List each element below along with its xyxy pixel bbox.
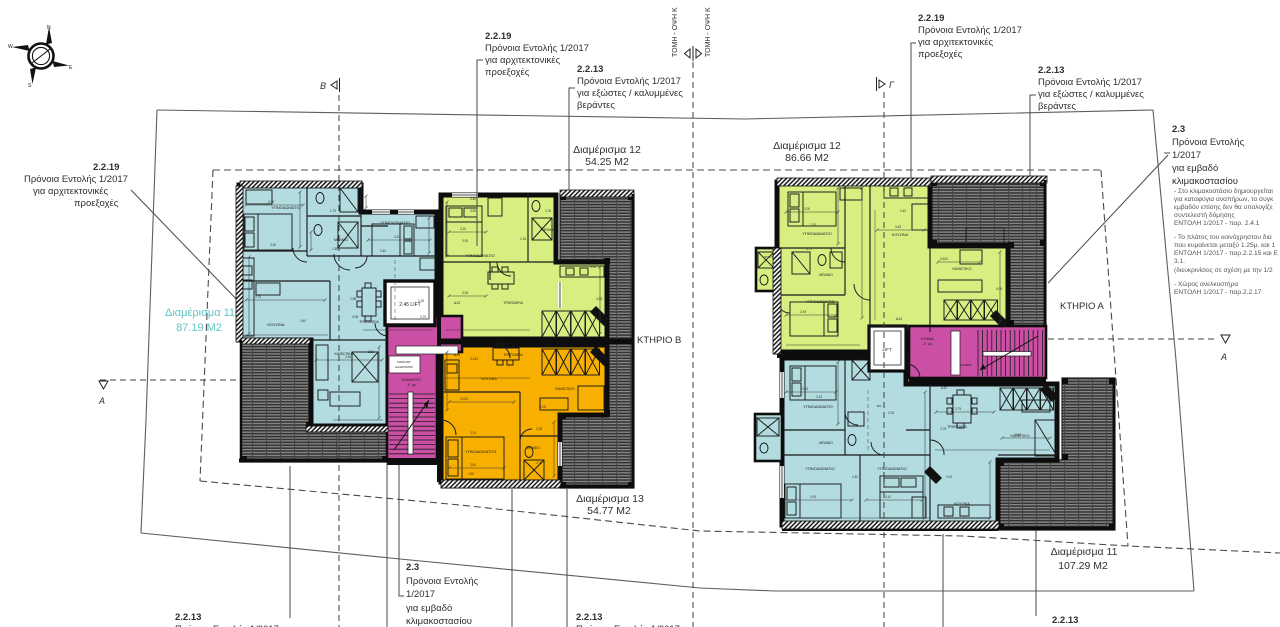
svg-text:για αρχιτεκτονικές: για αρχιτεκτονικές bbox=[918, 37, 993, 48]
svg-text:W: W bbox=[8, 44, 13, 50]
svg-text:2.3: 2.3 bbox=[406, 562, 419, 573]
svg-text:2.2.19: 2.2.19 bbox=[93, 162, 119, 173]
svg-text:1/2017: 1/2017 bbox=[1172, 150, 1201, 161]
svg-text:2.15: 2.15 bbox=[520, 237, 526, 241]
svg-text:NTOYΣ: NTOYΣ bbox=[764, 255, 774, 259]
svg-text:για εξώστες / καλυμμένες: για εξώστες / καλυμμένες bbox=[577, 88, 683, 99]
svg-text:54.77 M2: 54.77 M2 bbox=[587, 505, 631, 517]
svg-text:2.2.13: 2.2.13 bbox=[1052, 615, 1078, 626]
svg-text:(διευκρινίσεις σε σχέση με την: (διευκρινίσεις σε σχέση με την 1/2 bbox=[1174, 266, 1273, 274]
svg-text:- Χώρος ανελκυστήρα: - Χώρος ανελκυστήρα bbox=[1174, 280, 1238, 288]
svg-text:Πρόνοια Εντολής 1/2017: Πρόνοια Εντολής 1/2017 bbox=[918, 25, 1022, 36]
svg-text:3.75: 3.75 bbox=[255, 295, 261, 299]
svg-text:ΤΡΑΠΖΑΡΙΑ: ΤΡΑΠΖΑΡΙΑ bbox=[359, 320, 379, 324]
svg-text:A: A bbox=[1220, 352, 1227, 362]
svg-text:ΜΠΑΝΙΟ: ΜΠΑΝΙΟ bbox=[526, 446, 540, 450]
svg-text:ΤΡΑΠΖΑΡΙΑ: ΤΡΑΠΖΑΡΙΑ bbox=[947, 425, 967, 429]
svg-text:2.2.19: 2.2.19 bbox=[918, 13, 944, 24]
svg-text:ΜΠΑΝΙΟ: ΜΠΑΝΙΟ bbox=[819, 441, 833, 445]
svg-text:WC: WC bbox=[877, 404, 883, 408]
svg-text:86.66 M2: 86.66 M2 bbox=[785, 152, 829, 164]
svg-text:3.20: 3.20 bbox=[470, 431, 476, 435]
svg-text:για εμβαδό: για εμβαδό bbox=[406, 603, 452, 614]
svg-text:2.25: 2.25 bbox=[536, 427, 542, 431]
svg-text:4.55: 4.55 bbox=[596, 297, 602, 301]
svg-text:ΚΟΥΖΙΝΑ: ΚΟΥΖΙΝΑ bbox=[892, 233, 909, 237]
svg-text:87.19 M2: 87.19 M2 bbox=[176, 322, 222, 334]
svg-text:κλιμακοστασίου: κλιμακοστασίου bbox=[406, 616, 472, 627]
svg-text:ΜΠΑΝΙΟ: ΜΠΑΝΙΟ bbox=[542, 228, 556, 232]
svg-text:που κυμαίνεται μεταξύ 1.25μ. κ: που κυμαίνεται μεταξύ 1.25μ. και 1 bbox=[1174, 241, 1275, 249]
svg-text:2.2.13: 2.2.13 bbox=[175, 612, 201, 623]
svg-text:1.70: 1.70 bbox=[330, 209, 336, 213]
svg-text:54.25 M2: 54.25 M2 bbox=[585, 156, 629, 168]
svg-text:3.05: 3.05 bbox=[462, 291, 468, 295]
svg-text:3.45: 3.45 bbox=[895, 225, 901, 229]
svg-text:3.625: 3.625 bbox=[940, 257, 948, 261]
svg-text:N: N bbox=[47, 25, 51, 31]
svg-text:3.15: 3.15 bbox=[816, 395, 822, 399]
svg-text:ΚΤΗΡΙΟ Β: ΚΤΗΡΙΟ Β bbox=[637, 335, 681, 346]
svg-text:3.75: 3.75 bbox=[806, 247, 812, 251]
svg-text:ΥΠΝΟΔΩΜΑΤΙΟ: ΥΠΝΟΔΩΜΑΤΙΟ bbox=[802, 231, 832, 236]
svg-text:για εμβαδό: για εμβαδό bbox=[1172, 163, 1218, 174]
svg-text:3.445: 3.445 bbox=[470, 357, 478, 361]
svg-text:Διαμέρισμα 13: Διαμέρισμα 13 bbox=[576, 493, 644, 505]
svg-text:ΑΝΑΒΑΤ.: ΑΝΑΒΑΤ. bbox=[960, 363, 972, 367]
svg-text:Διαμέρισμα 12: Διαμέρισμα 12 bbox=[573, 144, 641, 156]
svg-text:εμβαδόν επίσης δεν θα υπολογίζ: εμβαδόν επίσης δεν θα υπολογίζε bbox=[1174, 203, 1273, 211]
svg-text:ΤΡΑΠΖΑΡΙΑ: ΤΡΑΠΖΑΡΙΑ bbox=[503, 353, 523, 357]
svg-text:ΥΠΝΟΔΩΜΑΤΙΟ: ΥΠΝΟΔΩΜΑΤΙΟ bbox=[271, 205, 301, 210]
svg-text:ΕΝΤΟΛΗ 1/2017 - παρ. 2.4.1: ΕΝΤΟΛΗ 1/2017 - παρ. 2.4.1 bbox=[1174, 220, 1260, 227]
svg-text:2.25: 2.25 bbox=[536, 461, 542, 465]
svg-text:3.10: 3.10 bbox=[885, 495, 891, 499]
svg-text:- Το πλάτος του κοινόχρηστου δ: - Το πλάτος του κοινόχρηστου δια bbox=[1174, 233, 1272, 241]
svg-text:3.40: 3.40 bbox=[394, 235, 400, 239]
svg-text:συντελεστή δόμησης: συντελεστή δόμησης bbox=[1174, 211, 1235, 219]
svg-text:Δ11: Δ11 bbox=[368, 350, 374, 354]
svg-text:4.55: 4.55 bbox=[590, 255, 596, 259]
svg-text:3.80: 3.80 bbox=[470, 463, 476, 467]
svg-text:ΥΠΝΟΔΩΜΑΤΙΟ: ΥΠΝΟΔΩΜΑΤΙΟ bbox=[805, 299, 835, 304]
svg-text:Πρόνοια Εντολής 1/2017: Πρόνοια Εντολής 1/2017 bbox=[1038, 77, 1142, 88]
svg-text:Πρόνοια Εντολής 1/2017: Πρόνοια Εντολής 1/2017 bbox=[24, 174, 128, 185]
svg-text:Γ: Γ bbox=[889, 80, 895, 90]
svg-text:προεξοχές: προεξοχές bbox=[485, 67, 530, 78]
svg-text:Αˈ ορ.: Αˈ ορ. bbox=[407, 383, 416, 387]
svg-text:για εξώστες / καλυμμένες: για εξώστες / καλυμμένες bbox=[1038, 89, 1144, 100]
svg-text:Αˈ ορ.: Αˈ ορ. bbox=[923, 342, 932, 346]
svg-text:ΥΠΝΟΔΩΜΑΤΙΟ: ΥΠΝΟΔΩΜΑΤΙΟ bbox=[803, 404, 833, 409]
svg-text:4.35: 4.35 bbox=[590, 265, 596, 269]
svg-text:3.08: 3.08 bbox=[352, 315, 358, 319]
svg-text:3.00: 3.00 bbox=[810, 495, 816, 499]
svg-text:Δ12: Δ12 bbox=[896, 317, 902, 321]
svg-text:3.40: 3.40 bbox=[900, 209, 906, 213]
svg-text:3.15: 3.15 bbox=[802, 387, 808, 391]
svg-text:3.40: 3.40 bbox=[380, 249, 386, 253]
svg-text:3.78: 3.78 bbox=[940, 427, 946, 431]
svg-text:ΜΠΑΝΙΟ: ΜΠΑΝΙΟ bbox=[819, 273, 833, 277]
svg-text:Πρόνοια Εντολής 1/2017: Πρόνοια Εντολής 1/2017 bbox=[485, 43, 589, 54]
svg-text:2.2.13: 2.2.13 bbox=[577, 64, 603, 75]
svg-text:3.025: 3.025 bbox=[460, 397, 468, 401]
svg-text:ΚΑΘΙΣΤΙΚΟ: ΚΑΘΙΣΤΙΚΟ bbox=[952, 267, 971, 271]
svg-text:ΥΠΝΟΔΩΜΑΤΙΟ: ΥΠΝΟΔΩΜΑΤΙΟ bbox=[877, 466, 907, 471]
svg-text:1.85: 1.85 bbox=[332, 247, 338, 251]
svg-text:ΚΟΥΖΙΝΑ: ΚΟΥΖΙΝΑ bbox=[267, 322, 285, 327]
svg-text:Διαμέρισμα 11: Διαμέρισμα 11 bbox=[165, 307, 235, 319]
svg-text:B: B bbox=[320, 81, 326, 91]
svg-text:ΥΠΝΟΔΩΜΑΤΙΟ: ΥΠΝΟΔΩΜΑΤΙΟ bbox=[465, 253, 495, 258]
svg-text:3.20: 3.20 bbox=[460, 227, 466, 231]
svg-text:Δ11: Δ11 bbox=[941, 386, 947, 390]
svg-text:Δ12: Δ12 bbox=[454, 301, 460, 305]
svg-text:- Στο κλιμακοστάσιο δημιουργεί: - Στο κλιμακοστάσιο δημιουργείται bbox=[1174, 187, 1273, 195]
svg-text:2.2.13: 2.2.13 bbox=[1038, 65, 1064, 76]
svg-text:ΕΝΤΟΛΗ 1/2017 - παρ.2.2.15 και: ΕΝΤΟΛΗ 1/2017 - παρ.2.2.15 και Ε bbox=[1174, 250, 1278, 257]
svg-text:A: A bbox=[98, 396, 105, 406]
svg-text:107.29 M2: 107.29 M2 bbox=[1058, 560, 1108, 572]
svg-text:Πρόνοια Εντολής: Πρόνοια Εντολής bbox=[406, 576, 479, 587]
svg-text:2.25: 2.25 bbox=[888, 411, 894, 415]
svg-text:3.80: 3.80 bbox=[470, 197, 476, 201]
svg-text:3.30: 3.30 bbox=[810, 223, 816, 227]
svg-text:5.05: 5.05 bbox=[996, 287, 1002, 291]
svg-text:ΚΛΙΜΑΚ.: ΚΛΙΜΑΚ. bbox=[921, 337, 935, 341]
svg-text:2.25: 2.25 bbox=[418, 299, 424, 303]
svg-text:προεξοχές: προεξοχές bbox=[74, 198, 119, 209]
svg-text:ΥΠΝΟΔΩΜΑΤΙΟ: ΥΠΝΟΔΩΜΑΤΙΟ bbox=[380, 220, 410, 225]
svg-text:ΚΟΙΝΟΧΡ.: ΚΟΙΝΟΧΡ. bbox=[397, 360, 411, 364]
svg-text:2.2.19: 2.2.19 bbox=[485, 31, 511, 42]
svg-text:3.30: 3.30 bbox=[270, 243, 276, 247]
svg-text:2.88: 2.88 bbox=[350, 297, 356, 301]
svg-text:Πρόνοια Εντολής: Πρόνοια Εντολής bbox=[1172, 137, 1245, 148]
svg-text:3.80: 3.80 bbox=[468, 472, 474, 476]
svg-text:για αρχιτεκτονικές: για αρχιτεκτονικές bbox=[485, 55, 560, 66]
svg-text:2.25: 2.25 bbox=[545, 209, 551, 213]
svg-text:βεράντες: βεράντες bbox=[1038, 101, 1076, 112]
svg-text:ΚΟΥΖΙΝΑ: ΚΟΥΖΙΝΑ bbox=[481, 377, 497, 381]
svg-text:ΜΠΑΝΙΟ: ΜΠΑΝΙΟ bbox=[334, 238, 349, 242]
svg-text:ΚΤΗΡΙΟ Α: ΚΤΗΡΙΟ Α bbox=[1060, 301, 1104, 312]
svg-text:3.75: 3.75 bbox=[420, 315, 426, 319]
svg-text:2.3: 2.3 bbox=[1172, 124, 1185, 135]
svg-text:Δ13: Δ13 bbox=[454, 353, 460, 357]
svg-text:2.49: 2.49 bbox=[800, 310, 806, 314]
svg-text:κλιμακοστασίου: κλιμακοστασίου bbox=[1172, 176, 1238, 187]
svg-text:3.30: 3.30 bbox=[268, 200, 274, 204]
svg-text:ΔΙΑΔΡΟΜΟΣ: ΔΙΑΔΡΟΜΟΣ bbox=[395, 365, 413, 369]
svg-text:Διαμέρισμα 12: Διαμέρισμα 12 bbox=[773, 140, 841, 152]
svg-text:5.80: 5.80 bbox=[1015, 433, 1021, 437]
svg-text:3.80: 3.80 bbox=[470, 209, 476, 213]
svg-text:ΤΟΜΗ - ΟΨΗ Κ: ΤΟΜΗ - ΟΨΗ Κ bbox=[672, 7, 679, 57]
svg-text:Διαμέρισμα 11: Διαμέρισμα 11 bbox=[1051, 546, 1118, 558]
svg-text:για καταφύγια αναπήρων, το συγ: για καταφύγια αναπήρων, το συγκ bbox=[1174, 195, 1274, 203]
svg-text:1/2017: 1/2017 bbox=[406, 589, 435, 600]
svg-text:3.75: 3.75 bbox=[955, 407, 961, 411]
svg-text:2.40: 2.40 bbox=[852, 475, 858, 479]
svg-text:3.40: 3.40 bbox=[300, 319, 306, 323]
svg-text:ΥΠΝΟΔΩΜΑΤΙΟ: ΥΠΝΟΔΩΜΑΤΙΟ bbox=[805, 466, 835, 471]
svg-text:Πρόνοια Εντολής 1/2017: Πρόνοια Εντολής 1/2017 bbox=[577, 76, 681, 87]
svg-text:για αρχιτεκτονικές: για αρχιτεκτονικές bbox=[33, 186, 108, 197]
svg-text:ΤΡΑΠΖΑΡΙΑ: ΤΡΑΠΖΑΡΙΑ bbox=[503, 301, 523, 305]
svg-text:ΕΝΤΟΛΗ 1/2017 - παρ.2.2.17: ΕΝΤΟΛΗ 1/2017 - παρ.2.2.17 bbox=[1174, 289, 1262, 296]
svg-text:3.05: 3.05 bbox=[462, 239, 468, 243]
svg-text:προεξοχές: προεξοχές bbox=[918, 49, 963, 60]
svg-text:1.05: 1.05 bbox=[540, 405, 546, 409]
svg-text:ΚΟΥΖΙΝΑ: ΚΟΥΖΙΝΑ bbox=[954, 502, 970, 506]
svg-text:3.45: 3.45 bbox=[345, 355, 351, 359]
svg-text:ΚΛΙΜΑΚΟΣΤ.: ΚΛΙΜΑΚΟΣΤ. bbox=[402, 378, 422, 382]
svg-text:βεράντες: βεράντες bbox=[577, 100, 615, 111]
svg-text:ΤΟΜΗ - ΟΨΗ Κ: ΤΟΜΗ - ΟΨΗ Κ bbox=[705, 7, 712, 57]
svg-text:3.00: 3.00 bbox=[946, 475, 952, 479]
svg-text:ΚΑΘΙΣΤΙΚΟ: ΚΑΘΙΣΤΙΚΟ bbox=[555, 387, 574, 391]
svg-text:3.1.: 3.1. bbox=[1174, 258, 1185, 265]
svg-text:ΥΠΝΟΔΩΜΑΤΙΟ1: ΥΠΝΟΔΩΜΑΤΙΟ1 bbox=[465, 449, 498, 454]
svg-text:2.2.13: 2.2.13 bbox=[576, 612, 602, 623]
svg-text:3.30: 3.30 bbox=[804, 207, 810, 211]
